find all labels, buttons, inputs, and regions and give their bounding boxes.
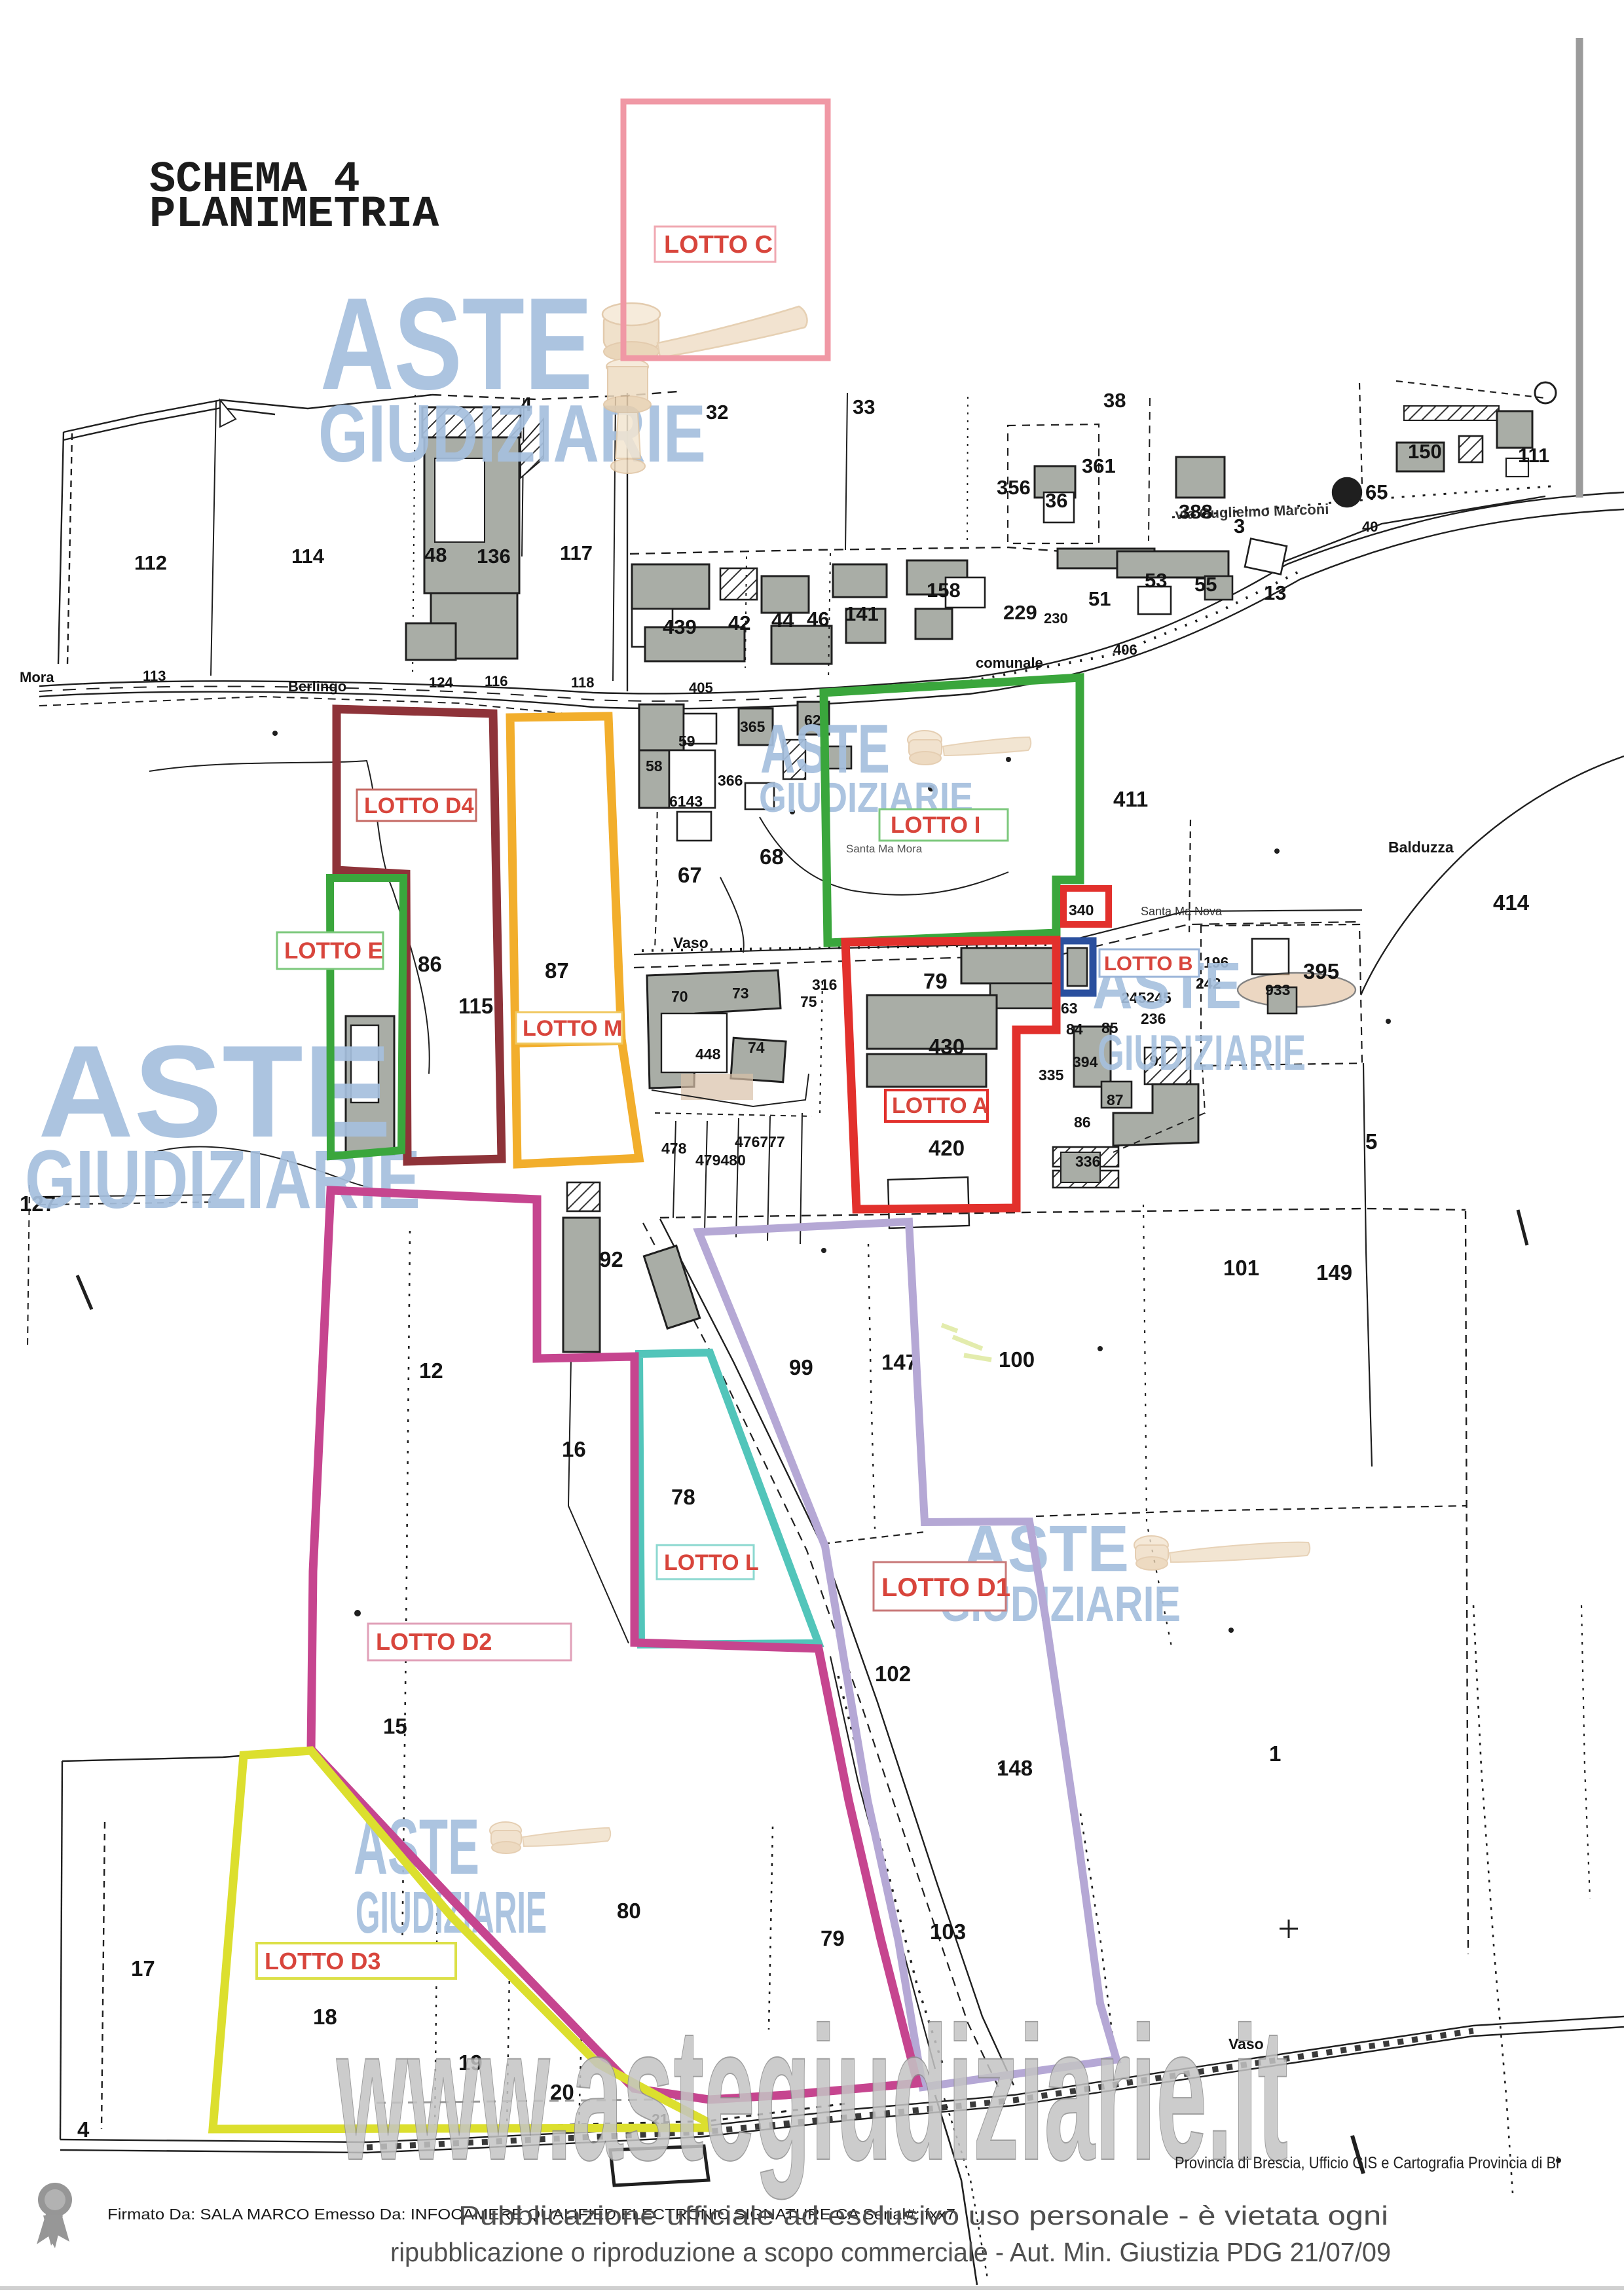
svg-text:17: 17 bbox=[131, 1956, 155, 1980]
svg-text:476777: 476777 bbox=[735, 1133, 785, 1150]
svg-text:38: 38 bbox=[1103, 389, 1126, 412]
svg-text:55: 55 bbox=[1194, 573, 1217, 596]
svg-text:356: 356 bbox=[997, 476, 1031, 499]
svg-text:36: 36 bbox=[1045, 489, 1067, 512]
svg-text:136: 136 bbox=[477, 545, 511, 568]
svg-text:42: 42 bbox=[728, 611, 750, 634]
svg-text:51: 51 bbox=[1088, 587, 1111, 610]
svg-text:Pubblicazione ufficiale ad esc: Pubblicazione ufficiale ad esclusivo uso… bbox=[458, 2200, 1388, 2231]
svg-text:75: 75 bbox=[800, 993, 817, 1010]
svg-text:18: 18 bbox=[313, 2005, 337, 2029]
svg-text:16: 16 bbox=[562, 1437, 586, 1461]
svg-text:68: 68 bbox=[760, 845, 784, 869]
svg-text:Balduzza: Balduzza bbox=[1388, 839, 1454, 856]
svg-text:395: 395 bbox=[1303, 959, 1339, 983]
svg-text:99: 99 bbox=[789, 1355, 813, 1379]
svg-text:Berlingo: Berlingo bbox=[288, 678, 346, 695]
svg-text:PLANIMETRIA: PLANIMETRIA bbox=[149, 190, 439, 240]
svg-text:58: 58 bbox=[646, 757, 663, 774]
svg-text:316: 316 bbox=[812, 976, 837, 993]
svg-text:112: 112 bbox=[134, 551, 167, 574]
svg-text:LOTTO D3: LOTTO D3 bbox=[265, 1948, 380, 1975]
svg-text:79: 79 bbox=[821, 1926, 845, 1950]
svg-text:LOTTO B: LOTTO B bbox=[1104, 952, 1192, 975]
svg-text:46: 46 bbox=[807, 608, 829, 630]
svg-text:336: 336 bbox=[1075, 1153, 1100, 1170]
svg-text:13: 13 bbox=[1264, 581, 1286, 604]
svg-text:103: 103 bbox=[930, 1920, 966, 1944]
svg-text:67: 67 bbox=[678, 863, 702, 887]
svg-text:65: 65 bbox=[1365, 481, 1388, 503]
svg-text:74: 74 bbox=[748, 1039, 765, 1056]
svg-text:111: 111 bbox=[1518, 444, 1549, 467]
svg-text:59: 59 bbox=[678, 733, 695, 750]
svg-text:79: 79 bbox=[923, 969, 948, 993]
svg-text:Mora: Mora bbox=[20, 669, 54, 685]
svg-text:229: 229 bbox=[1003, 601, 1037, 624]
svg-text:406: 406 bbox=[1113, 642, 1137, 658]
svg-text:Provincia di Brescia, Ufficio: Provincia di Brescia, Ufficio GIS e Cart… bbox=[1175, 2154, 1559, 2172]
svg-text:149: 149 bbox=[1316, 1260, 1352, 1285]
svg-text:478: 478 bbox=[661, 1140, 687, 1157]
svg-text:394: 394 bbox=[1073, 1053, 1098, 1070]
svg-text:420: 420 bbox=[929, 1136, 965, 1160]
svg-text:118: 118 bbox=[571, 674, 595, 691]
svg-text:439: 439 bbox=[663, 615, 697, 638]
svg-text:124: 124 bbox=[429, 674, 453, 691]
svg-text:44: 44 bbox=[771, 609, 794, 632]
svg-text:GIUDIZIARIE: GIUDIZIARIE bbox=[25, 1133, 420, 1226]
svg-text:430: 430 bbox=[929, 1034, 965, 1059]
svg-text:87: 87 bbox=[1107, 1091, 1124, 1108]
svg-text:Vaso: Vaso bbox=[673, 934, 709, 951]
svg-text:411: 411 bbox=[1113, 787, 1148, 811]
svg-text:102: 102 bbox=[875, 1662, 911, 1686]
svg-text:117: 117 bbox=[560, 541, 593, 564]
svg-text:114: 114 bbox=[291, 545, 325, 568]
svg-text:LOTTO D4: LOTTO D4 bbox=[364, 793, 474, 818]
svg-text:32: 32 bbox=[706, 401, 728, 424]
svg-text:335: 335 bbox=[1039, 1066, 1064, 1084]
svg-text:6143: 6143 bbox=[669, 793, 703, 810]
svg-text:LOTTO D1: LOTTO D1 bbox=[881, 1573, 1010, 1602]
svg-text:Santa Ma Nova: Santa Ma Nova bbox=[1141, 905, 1223, 918]
svg-text:448: 448 bbox=[695, 1046, 721, 1063]
svg-text:80: 80 bbox=[617, 1899, 641, 1923]
svg-text:63: 63 bbox=[1061, 1000, 1078, 1017]
svg-text:116: 116 bbox=[485, 673, 508, 689]
svg-text:GIUDIZIARIE: GIUDIZIARIE bbox=[1098, 1025, 1306, 1081]
svg-text:933: 933 bbox=[1265, 981, 1290, 998]
svg-text:115: 115 bbox=[458, 994, 493, 1018]
svg-text:340: 340 bbox=[1069, 902, 1094, 919]
svg-text:33: 33 bbox=[853, 395, 875, 418]
svg-text:479480: 479480 bbox=[695, 1152, 746, 1169]
svg-text:230: 230 bbox=[1044, 610, 1068, 627]
svg-text:4: 4 bbox=[77, 2117, 90, 2141]
svg-text:405: 405 bbox=[689, 680, 713, 696]
svg-text:LOTTO E: LOTTO E bbox=[284, 938, 383, 964]
svg-text:86: 86 bbox=[1074, 1114, 1091, 1131]
svg-text:5: 5 bbox=[1365, 1129, 1377, 1154]
svg-text:141: 141 bbox=[845, 602, 879, 625]
svg-text:LOTTO A: LOTTO A bbox=[892, 1093, 988, 1118]
svg-text:Santa Ma Mora: Santa Ma Mora bbox=[846, 843, 923, 855]
svg-text:ripubblicazione o riproduzione: ripubblicazione o riproduzione a scopo c… bbox=[390, 2237, 1391, 2267]
svg-text:comunale: comunale bbox=[976, 655, 1043, 671]
svg-text:48: 48 bbox=[424, 543, 447, 566]
svg-text:53: 53 bbox=[1145, 569, 1167, 592]
svg-text:366: 366 bbox=[718, 772, 743, 789]
svg-text:113: 113 bbox=[143, 668, 166, 684]
svg-text:70: 70 bbox=[671, 988, 688, 1005]
svg-text:1: 1 bbox=[1269, 1741, 1281, 1766]
svg-text:73: 73 bbox=[732, 985, 749, 1002]
svg-text:12: 12 bbox=[419, 1358, 443, 1383]
svg-text:361: 361 bbox=[1082, 454, 1116, 477]
svg-text:87: 87 bbox=[545, 958, 569, 983]
svg-text:LOTTO I: LOTTO I bbox=[891, 812, 980, 838]
svg-text:LOTTO C: LOTTO C bbox=[664, 231, 773, 259]
svg-text:LOTTO L: LOTTO L bbox=[664, 1550, 759, 1575]
svg-text:100: 100 bbox=[999, 1347, 1035, 1372]
svg-text:LOTTO D2: LOTTO D2 bbox=[376, 1628, 492, 1655]
svg-text:15: 15 bbox=[383, 1714, 407, 1738]
svg-text:92: 92 bbox=[599, 1247, 623, 1271]
svg-text:84: 84 bbox=[1066, 1021, 1083, 1038]
svg-text:414: 414 bbox=[1493, 890, 1530, 915]
svg-text:158: 158 bbox=[927, 579, 961, 602]
svg-text:www.astegiudiziarie.it: www.astegiudiziarie.it bbox=[335, 1988, 1288, 2200]
svg-text:150: 150 bbox=[1408, 440, 1442, 463]
svg-text:148: 148 bbox=[997, 1756, 1033, 1780]
svg-text:40: 40 bbox=[1362, 519, 1378, 535]
svg-text:86: 86 bbox=[418, 952, 442, 976]
svg-text:LOTTO M: LOTTO M bbox=[523, 1016, 622, 1041]
svg-text:78: 78 bbox=[671, 1485, 695, 1509]
svg-text:101: 101 bbox=[1223, 1256, 1259, 1280]
